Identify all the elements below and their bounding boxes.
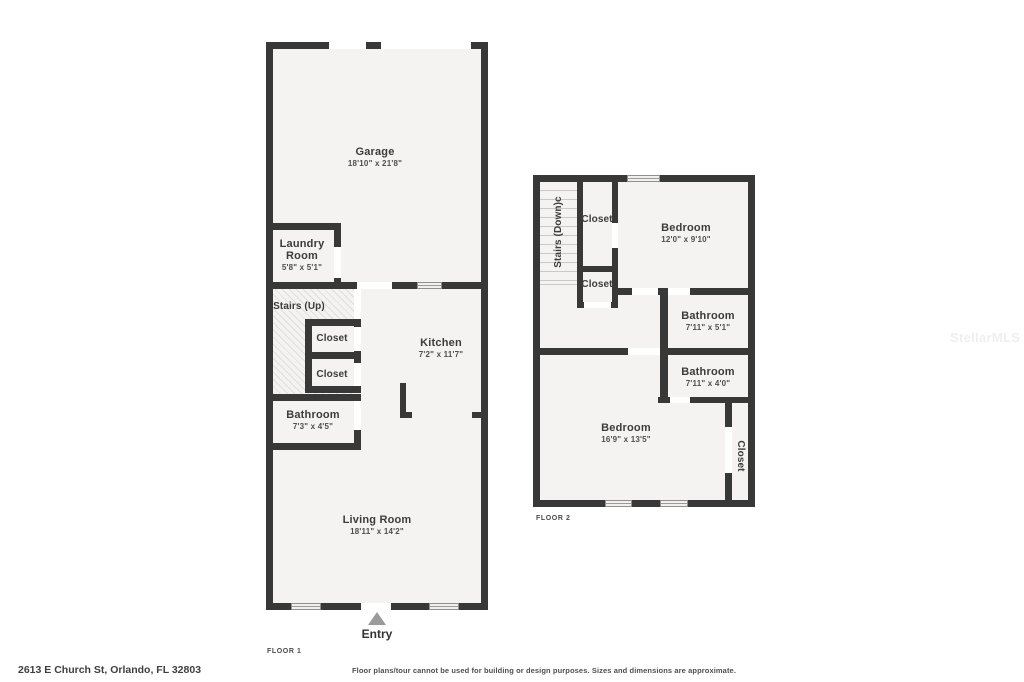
room-name: Bedroom (636, 222, 736, 234)
door-opening (381, 42, 471, 49)
wall (266, 443, 361, 450)
wall (660, 175, 755, 182)
wall (540, 348, 628, 355)
floor2-tag: FLOOR 2 (536, 515, 571, 522)
door-opening (668, 288, 690, 295)
door-opening (354, 401, 361, 430)
room-label-stairs-down: Stairs (Down)c (553, 177, 565, 287)
disclaimer-text: Floor plans/tour cannot be used for buil… (352, 666, 736, 675)
wall (577, 302, 584, 308)
door-opening (612, 223, 618, 248)
wall (632, 500, 660, 507)
room-dims: 5'8" x 5'1" (270, 263, 334, 273)
wall (391, 603, 429, 610)
room-label-closet-b-f2: Closet (572, 279, 622, 291)
door-opening (584, 302, 611, 308)
wall (321, 603, 354, 610)
wall (481, 42, 488, 610)
wall (334, 223, 341, 247)
room-label-bedroom-b: Bedroom 16'9" x 13'5" (576, 422, 676, 445)
door-opening (354, 289, 361, 319)
door-opening (725, 427, 732, 473)
window (291, 603, 321, 610)
wall (266, 394, 361, 401)
wall (533, 500, 605, 507)
wall (400, 412, 412, 418)
door-opening (361, 603, 391, 610)
room-dims: 7'11" x 4'0" (658, 379, 758, 389)
room-dims: 7'2" x 11'7" (391, 350, 491, 360)
room-label-bedroom-a: Bedroom 12'0" x 9'10" (636, 222, 736, 245)
wall (266, 603, 291, 610)
room-name: Kitchen (391, 337, 491, 349)
wall (471, 42, 488, 49)
room-dims: 7'3" x 4'5" (271, 422, 355, 432)
property-address: 2613 E Church St, Orlando, FL 32803 (18, 664, 201, 676)
window (605, 500, 632, 507)
room-name: Bedroom (576, 422, 676, 434)
room-name: Stairs (Up) (270, 301, 328, 313)
wall (305, 386, 361, 393)
room-label-garage: Garage 18'10" x 21'8" (325, 146, 425, 169)
wall (266, 42, 329, 49)
wall (442, 282, 488, 289)
room-dims: 7'11" x 5'1" (658, 323, 758, 333)
wall (725, 473, 732, 500)
door-opening (334, 247, 341, 278)
stellarmls-watermark: StellarMLS (950, 330, 1020, 345)
room-name: Bathroom (658, 366, 758, 378)
room-name: Closet (572, 279, 622, 291)
wall (611, 302, 618, 308)
wall (658, 397, 670, 403)
wall (354, 319, 361, 327)
entry-arrow-icon (368, 612, 386, 625)
door-opening (670, 397, 690, 403)
wall (305, 352, 361, 359)
room-name: Closet (734, 401, 746, 511)
room-label-closet-b-f1: Closet (307, 369, 357, 381)
wall (533, 175, 540, 507)
room-dims: 16'9" x 13'5" (576, 435, 676, 445)
room-name: Closet (307, 333, 357, 345)
wall (366, 42, 381, 49)
room-label-kitchen: Kitchen 7'2" x 11'7" (391, 337, 491, 360)
door-opening (628, 348, 660, 355)
door-opening (329, 42, 366, 49)
wall (725, 403, 732, 427)
floor-plan-page: { "watermark": "StellarMLS", "floor1": {… (0, 0, 1024, 682)
room-name: Bathroom (658, 310, 758, 322)
wall (266, 42, 273, 610)
entry-label: Entry (347, 627, 407, 641)
room-label-closet-a-f1: Closet (307, 333, 357, 345)
wall (748, 175, 755, 507)
room-name: Closet (572, 214, 622, 226)
door-opening (632, 288, 658, 295)
window (627, 175, 660, 182)
window (660, 500, 688, 507)
room-label-living-room: Living Room 18'11" x 14'2" (317, 514, 437, 537)
room-label-laundry: Laundry Room 5'8" x 5'1" (270, 238, 334, 273)
room-name: Garage (325, 146, 425, 158)
wall (354, 351, 361, 363)
room-label-bathroom-a: Bathroom 7'11" x 5'1" (658, 310, 758, 333)
room-label-stairs-up: Stairs (Up) (270, 301, 328, 313)
floorplan-drawing-layer (0, 0, 1024, 682)
window (429, 603, 459, 610)
room-dims: 18'11" x 14'2" (317, 527, 437, 537)
room-name: Living Room (317, 514, 437, 526)
room-name: Bathroom (271, 409, 355, 421)
room-label-closet-c-f2: Closet (734, 401, 746, 511)
wall (660, 348, 748, 355)
wall (459, 603, 488, 610)
room-dims: 12'0" x 9'10" (636, 235, 736, 245)
room-name: Stairs (Down)c (553, 177, 565, 287)
wall (472, 412, 488, 418)
door-opening (357, 282, 392, 289)
window (417, 282, 442, 289)
room-label-bathroom-f1: Bathroom 7'3" x 4'5" (271, 409, 355, 432)
wall (690, 288, 748, 295)
wall (266, 223, 341, 230)
room-name: Laundry Room (270, 238, 334, 262)
floor1-tag: FLOOR 1 (267, 648, 302, 655)
room-label-closet-a-f2: Closet (572, 214, 622, 226)
room-label-bathroom-b: Bathroom 7'11" x 4'0" (658, 366, 758, 389)
room-dims: 18'10" x 21'8" (325, 159, 425, 169)
wall (392, 282, 417, 289)
wall (266, 282, 357, 289)
wall (305, 319, 361, 326)
wall (354, 603, 361, 610)
room-name: Closet (307, 369, 357, 381)
